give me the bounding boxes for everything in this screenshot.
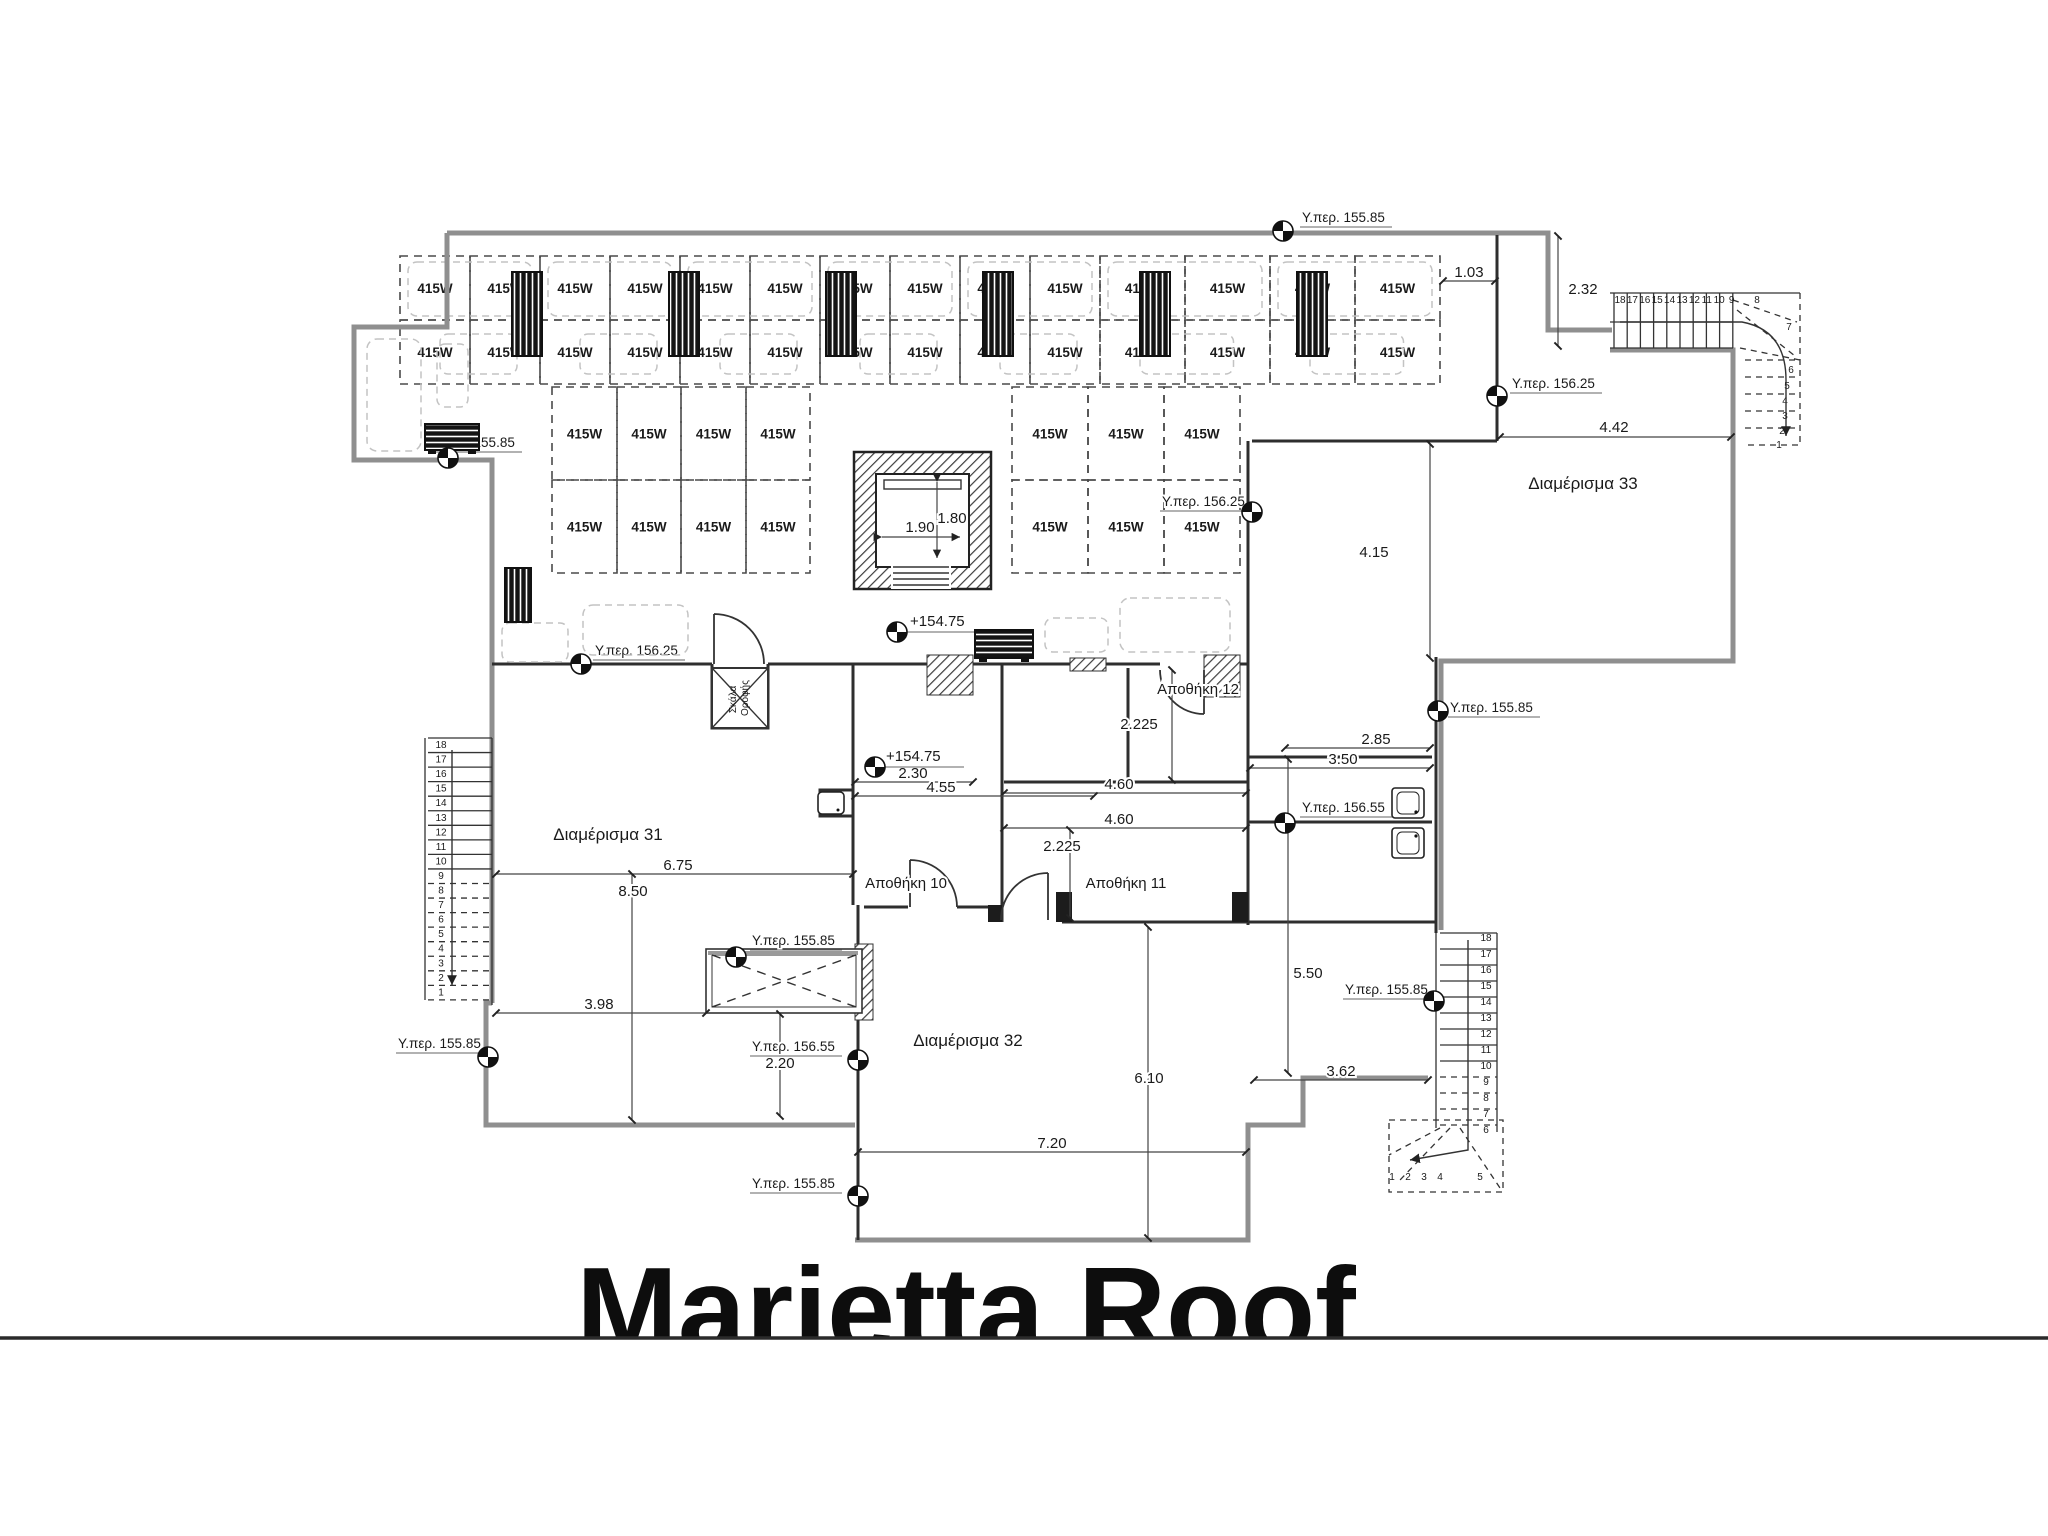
dimension-label: 3.98 — [584, 996, 613, 1013]
solar-panel-label: 415W — [557, 281, 593, 296]
level-label: Υ.περ. 156.25 — [1512, 376, 1595, 391]
stair-number: 4 — [1437, 1172, 1443, 1183]
roof-hatch-box: Σκάλα Οροφής — [712, 668, 768, 728]
level-label: Υ.περ. 155.85 — [1302, 210, 1385, 225]
dimension-label: 4.15 — [1359, 544, 1388, 561]
level-label: Υ.περ. 156.55 — [1302, 800, 1385, 815]
stair-number: 9 — [1483, 1077, 1489, 1088]
stair-number: 11 — [436, 842, 447, 853]
stair-number: 4 — [438, 944, 444, 955]
level-marker-icon — [1275, 813, 1295, 833]
stair-number: 11 — [1481, 1045, 1492, 1056]
stair-number: 10 — [435, 856, 447, 867]
collector-unit-icon — [1140, 272, 1170, 356]
stair-number: 17 — [1480, 949, 1492, 960]
solar-panel-label: 415W — [1108, 520, 1144, 535]
level-label: Υ.περ. 155.85 — [398, 1036, 481, 1051]
solar-panel-label: 415W — [1184, 427, 1220, 442]
stair-number: 11 — [1702, 295, 1713, 306]
stair-number: 14 — [435, 798, 447, 809]
solar-panel-label: 415W — [760, 520, 796, 535]
solar-panel-label: 415W — [1184, 520, 1220, 535]
level-marker-icon — [1428, 701, 1448, 721]
dimension-label: 3.50 — [1328, 751, 1357, 768]
dimension-label: 2.225 — [1043, 838, 1081, 855]
dimension-label: 4.60 — [1104, 776, 1133, 793]
stair-number: 10 — [1714, 295, 1726, 306]
dimension-label: 7.20 — [1037, 1135, 1066, 1152]
stair-number: 15 — [435, 784, 447, 795]
stair-number: 6 — [1788, 365, 1794, 376]
stair-number: 17 — [1627, 295, 1639, 306]
stair-number: 14 — [1664, 295, 1676, 306]
solar-panel-label: 415W — [627, 281, 663, 296]
stair-number: 16 — [435, 769, 447, 780]
stair-number: 3 — [1782, 411, 1788, 422]
roof-plan-drawing: 415W415W415W415W415W415W415W415W415W415W… — [0, 0, 2048, 1536]
collector-unit-icon — [512, 272, 542, 356]
stair-number: 5 — [438, 929, 444, 940]
stair-number: 15 — [1652, 295, 1664, 306]
dimension-label: 4.60 — [1104, 811, 1133, 828]
solar-panel-label: 415W — [907, 281, 943, 296]
stair-number: 8 — [438, 886, 444, 897]
stair-number: 15 — [1480, 981, 1492, 992]
collector-unit-icon — [669, 272, 699, 356]
stair-number: 7 — [1483, 1109, 1489, 1120]
dimension-label: 4.55 — [926, 779, 955, 796]
dimension-label: 2.85 — [1361, 731, 1390, 748]
stair-number: 12 — [435, 827, 447, 838]
dimension-label: 6.10 — [1134, 1070, 1163, 1087]
stair-number: 7 — [438, 900, 444, 911]
stair-number: 12 — [1689, 295, 1701, 306]
stair-number: 5 — [1477, 1172, 1483, 1183]
level-marker-icon — [848, 1050, 868, 1070]
stair-number: 12 — [1480, 1029, 1492, 1040]
stair-number: 18 — [435, 740, 447, 751]
stair-number: 17 — [435, 755, 447, 766]
room-label: Διαμέρισμα 32 — [913, 1031, 1023, 1050]
solar-panel-label: 415W — [557, 345, 593, 360]
stair-number: 13 — [435, 813, 447, 824]
solar-panel-label: 415W — [1380, 345, 1416, 360]
solar-panel-label: 415W — [631, 427, 667, 442]
stair-number: 9 — [1729, 295, 1735, 306]
stair-number: 16 — [1480, 965, 1492, 976]
stair-number: 9 — [438, 871, 444, 882]
solar-panel-label: 415W — [696, 520, 732, 535]
stair-number: 1 — [438, 987, 444, 998]
collector-unit-icon — [1297, 272, 1327, 356]
stair-number: 2 — [1405, 1172, 1411, 1183]
level-marker-icon — [478, 1047, 498, 1067]
dimension-label: 6.75 — [663, 857, 692, 874]
solar-panel-label: 415W — [1032, 520, 1068, 535]
stair-number: 10 — [1480, 1061, 1492, 1072]
level-label: Υ.περ. 156.55 — [752, 1039, 835, 1054]
elevator-car-door — [884, 480, 961, 489]
wash-basin — [818, 792, 844, 814]
dimension-label: 2.225 — [1120, 716, 1158, 733]
level-marker-icon — [1273, 221, 1293, 241]
solar-panel-label: 415W — [1210, 345, 1246, 360]
floor-plan-sheet: 415W415W415W415W415W415W415W415W415W415W… — [0, 0, 2048, 1536]
ac-unit-icon — [975, 630, 1033, 662]
solar-panel-label: 415W — [767, 281, 803, 296]
dimension-label: 5.50 — [1293, 965, 1322, 982]
solar-panel-label: 415W — [696, 427, 732, 442]
level-marker-icon — [1487, 386, 1507, 406]
stair-number: 2 — [438, 973, 444, 984]
room-label: Αποθήκη 12 — [1157, 681, 1239, 698]
stair-number: 1 — [1776, 440, 1782, 451]
dimension-label: 1.90 — [905, 519, 934, 536]
level-marker-icon — [848, 1186, 868, 1206]
dimension-label: 3.62 — [1326, 1063, 1355, 1080]
stair-number: 18 — [1480, 933, 1492, 944]
solar-panel-label: 415W — [567, 520, 603, 535]
dimension-label: 8.50 — [618, 883, 647, 900]
stair-number: 2 — [1779, 426, 1785, 437]
dimension-label: 4.42 — [1599, 419, 1628, 436]
level-marker-icon — [1242, 502, 1262, 522]
solar-panel-label: 415W — [567, 427, 603, 442]
stair-number: 6 — [438, 915, 444, 926]
stair-number: 4 — [1782, 396, 1788, 407]
stair-number: 14 — [1480, 997, 1492, 1008]
stair-number: 3 — [1421, 1172, 1427, 1183]
level-marker-icon — [1424, 991, 1444, 1011]
solar-panel-label: 415W — [1032, 427, 1068, 442]
solar-panel-label: 415W — [1108, 427, 1144, 442]
stair-number: 13 — [1676, 295, 1688, 306]
stair-number: 3 — [438, 958, 444, 969]
level-marker-icon — [438, 448, 458, 468]
collector-unit-icon — [826, 272, 856, 356]
stair-number: 6 — [1483, 1125, 1489, 1136]
stair-number: 16 — [1639, 295, 1651, 306]
solar-panel-label: 415W — [631, 520, 667, 535]
stair-number: 8 — [1754, 295, 1760, 306]
solar-panel-label: 415W — [1047, 281, 1083, 296]
stair-number: 13 — [1480, 1013, 1492, 1024]
room-label: Διαμέρισμα 31 — [553, 825, 663, 844]
level-label: Υ.περ. 156.25 — [1162, 494, 1245, 509]
solar-panel-label: 415W — [1380, 281, 1416, 296]
level-label: Υ.περ. 155.85 — [1450, 700, 1533, 715]
ac-unit-icon — [505, 568, 531, 622]
room-label: Διαμέρισμα 33 — [1528, 474, 1638, 493]
stair-number: 5 — [1784, 381, 1790, 392]
solar-panel-label: 415W — [697, 281, 733, 296]
dimension-label: 1.80 — [937, 510, 966, 527]
solar-panel-label: 415W — [417, 345, 453, 360]
solar-panel-label: 415W — [697, 345, 733, 360]
level-marker-icon — [726, 947, 746, 967]
spot-level-label: +154.75 — [910, 613, 965, 630]
stair-number: 8 — [1483, 1093, 1489, 1104]
level-marker-icon — [887, 622, 907, 642]
stair-number: 1 — [1389, 1172, 1395, 1183]
dimension-label: 2.32 — [1568, 281, 1597, 298]
level-label: Υ.περ. 155.85 — [752, 1176, 835, 1191]
spot-level-label: +154.75 — [886, 748, 941, 765]
dimension-label: 2.20 — [765, 1055, 794, 1072]
level-marker-icon — [571, 654, 591, 674]
level-label: Υ.περ. 155.85 — [752, 933, 835, 948]
solar-panel-label: 415W — [1210, 281, 1246, 296]
level-marker-icon — [865, 757, 885, 777]
level-label: Υ.περ. 155.85 — [1345, 982, 1428, 997]
room-label: Αποθήκη 10 — [865, 875, 947, 892]
room-label: Αποθήκη 11 — [1086, 875, 1167, 892]
dimension-label: 1.03 — [1454, 264, 1483, 281]
stair-number: 7 — [1786, 322, 1792, 333]
dimension-label: 2.30 — [898, 765, 927, 782]
collector-unit-icon — [983, 272, 1013, 356]
stair-number: 18 — [1614, 295, 1626, 306]
solar-panel-label: 415W — [760, 427, 796, 442]
